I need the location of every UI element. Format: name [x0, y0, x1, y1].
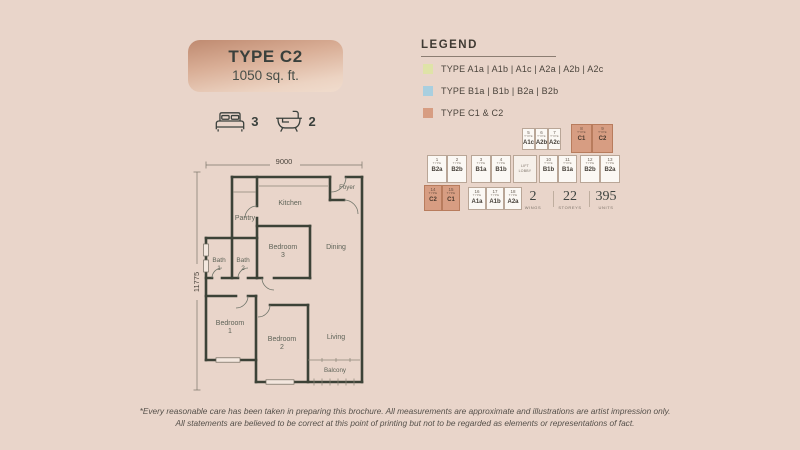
room-label-bedroom2-num: 2	[280, 344, 284, 351]
unit-code: C1	[447, 196, 455, 204]
room-label-bedroom3-num: 3	[281, 252, 285, 259]
unit-block-b1a-left: 3 TYPE B1a	[471, 155, 491, 183]
stat-storeys-value: 22	[553, 190, 587, 204]
room-label-foyer: Foyer	[339, 184, 355, 191]
lift-lobby-label-2: LOBBY	[519, 169, 532, 174]
legend-item-type-a: TYPE A1a | A1b | A1c | A2a | A2b | A2c	[423, 64, 603, 74]
dim-width-label: 9000	[276, 157, 293, 166]
unit-code: B1b	[495, 166, 506, 174]
bedrooms-count: 3	[251, 114, 258, 129]
unit-block-b1b-right: 10 TYPE B1b	[539, 155, 558, 183]
room-label-bath2-num: 2	[241, 265, 245, 272]
unit-block-c1-bottom: 15 TYPE C1	[442, 185, 460, 211]
unit-block-c1-top: 8 TYPE C1	[571, 124, 592, 153]
unit-code: B1b	[543, 166, 554, 174]
unit-area: 1050 sq. ft.	[232, 67, 299, 85]
unit-code: C2	[599, 135, 607, 143]
unit-block-b2a-left: 1 TYPE B2a	[427, 155, 447, 183]
bathtub-icon	[275, 110, 303, 133]
walls	[206, 177, 362, 382]
bedrooms-item: 3	[215, 111, 258, 132]
room-label-bedroom3: Bedroom	[269, 244, 298, 251]
room-label-balcony: Balcony	[324, 367, 347, 374]
bathrooms-count: 2	[309, 114, 316, 129]
type-c-swatch	[423, 108, 433, 118]
amenities-row: 3 2	[188, 110, 343, 133]
unit-code: B1a	[475, 166, 486, 174]
type-b-swatch	[423, 86, 433, 96]
unit-code: A1a	[471, 198, 482, 206]
room-label-kitchen: Kitchen	[278, 200, 301, 207]
stat-storeys-label: STOREYS	[553, 205, 587, 210]
legend-underline	[421, 56, 556, 57]
stat-units: 395 UNITS	[589, 190, 623, 210]
disclaimer-line-1: *Every reasonable care has been taken in…	[100, 405, 710, 417]
room-label-bath2: Bath	[236, 257, 250, 264]
stat-wings: 2 WINGS	[516, 190, 550, 210]
floor-plan: 9000 11775	[190, 156, 395, 400]
unit-block-c2-top: 9 TYPE C2	[592, 124, 613, 153]
unit-block-a2b: 6 TYPE A2b	[535, 128, 548, 150]
unit-code: C1	[578, 135, 586, 143]
unit-block-b2b-right: 12 TYPE B2b	[580, 155, 600, 183]
unit-block-b1a-right: 11 TYPE B1a	[558, 155, 577, 183]
unit-code: A1c	[523, 139, 534, 147]
bathrooms-item: 2	[275, 110, 316, 133]
stat-storeys: 22 STOREYS	[553, 190, 587, 210]
unit-code: B2a	[604, 166, 615, 174]
stat-units-value: 395	[589, 190, 623, 204]
unit-block-b2a-right: 13 TYPE B2a	[600, 155, 620, 183]
unit-code: B2b	[451, 166, 462, 174]
disclaimer: *Every reasonable care has been taken in…	[100, 405, 710, 429]
disclaimer-line-2: All statements are believed to be correc…	[100, 417, 710, 429]
room-label-bedroom2: Bedroom	[268, 336, 297, 343]
unit-block-a1b: 17 TYPE A1b	[486, 187, 504, 210]
dim-height-label: 11775	[192, 272, 201, 292]
unit-block-b1b-left: 4 TYPE B1b	[491, 155, 511, 183]
unit-type-card: TYPE C2 1050 sq. ft.	[188, 40, 343, 92]
unit-code: A2c	[549, 139, 560, 147]
unit-code: A2b	[536, 139, 547, 147]
bed-icon	[215, 111, 245, 132]
unit-code: C2	[429, 196, 437, 204]
room-label-bedroom1-num: 1	[228, 328, 232, 335]
unit-block-c2-bottom: 14 TYPE C2	[424, 185, 442, 211]
room-label-bath1-num: 1	[217, 265, 221, 272]
unit-block-b2b-left: 2 TYPE B2b	[447, 155, 467, 183]
room-label-bath1: Bath	[212, 257, 226, 264]
unit-block-a2c: 7 TYPE A2c	[548, 128, 561, 150]
unit-block-a1c: 5 TYPE A1c	[522, 128, 535, 150]
legend-item-type-c: TYPE C1 & C2	[423, 108, 503, 118]
stat-units-label: UNITS	[589, 205, 623, 210]
room-label-pantry: Pantry	[235, 215, 256, 222]
unit-code: A1b	[489, 198, 500, 206]
legend-label-type-c: TYPE C1 & C2	[441, 108, 503, 118]
stat-wings-value: 2	[516, 190, 550, 204]
type-a-swatch	[423, 64, 433, 74]
dimension-lines	[194, 162, 363, 391]
legend-label-type-a: TYPE A1a | A1b | A1c | A2a | A2b | A2c	[441, 64, 603, 74]
unit-code: B1a	[562, 166, 573, 174]
legend-title: LEGEND	[421, 39, 478, 51]
floor-plate-diagram: 5 TYPE A1c 6 TYPE A2b 7 TYPE A2c 8 TYPE …	[418, 122, 630, 217]
unit-code: B2b	[584, 166, 595, 174]
lift-lobby-block: LIFT LOBBY	[513, 155, 537, 183]
room-label-bedroom1: Bedroom	[216, 320, 245, 327]
stat-wings-label: WINGS	[516, 205, 550, 210]
room-label-dining: Dining	[326, 244, 346, 251]
unit-code: B2a	[431, 166, 442, 174]
room-label-living: Living	[327, 334, 345, 341]
unit-block-a1a: 16 TYPE A1a	[468, 187, 486, 210]
legend-label-type-b: TYPE B1a | B1b | B2a | B2b	[441, 86, 558, 96]
unit-type-title: TYPE C2	[228, 47, 302, 67]
legend-item-type-b: TYPE B1a | B1b | B2a | B2b	[423, 86, 558, 96]
